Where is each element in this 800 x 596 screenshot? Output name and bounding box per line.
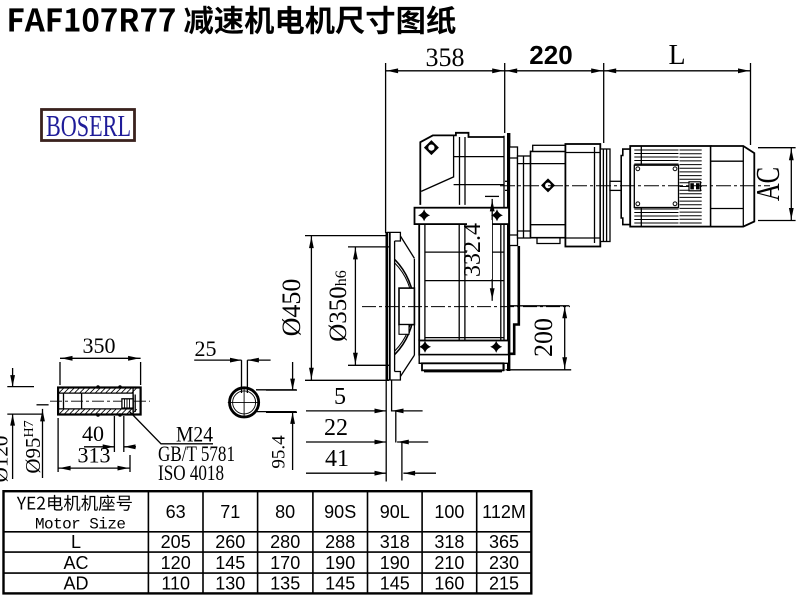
svg-text:215: 215 xyxy=(489,574,519,594)
svg-text:L: L xyxy=(71,532,81,552)
svg-text:Ø450: Ø450 xyxy=(277,279,306,337)
svg-text:210: 210 xyxy=(434,553,464,573)
svg-text:318: 318 xyxy=(434,532,464,552)
svg-text:22: 22 xyxy=(324,415,348,441)
svg-text:90L: 90L xyxy=(380,502,410,522)
svg-text:ISO 4018: ISO 4018 xyxy=(158,460,224,485)
svg-text:145: 145 xyxy=(215,553,245,573)
svg-text:25: 25 xyxy=(195,336,217,361)
svg-text:205: 205 xyxy=(161,532,191,552)
svg-text:80: 80 xyxy=(275,502,295,522)
svg-text:280: 280 xyxy=(270,532,300,552)
svg-text:90S: 90S xyxy=(324,502,356,522)
svg-text:200: 200 xyxy=(529,318,558,357)
svg-text:313: 313 xyxy=(78,443,111,468)
svg-text:170: 170 xyxy=(270,553,300,573)
svg-text:BOSERL: BOSERL xyxy=(46,109,131,143)
svg-text:145: 145 xyxy=(380,574,410,594)
svg-text:190: 190 xyxy=(325,553,355,573)
svg-text:365: 365 xyxy=(489,532,519,552)
svg-text:318: 318 xyxy=(380,532,410,552)
svg-text:130: 130 xyxy=(215,574,245,594)
svg-text:110: 110 xyxy=(161,574,190,594)
svg-text:260: 260 xyxy=(215,532,245,552)
svg-text:Ø350h6: Ø350h6 xyxy=(325,270,352,342)
svg-text:L: L xyxy=(668,40,685,71)
svg-text:230: 230 xyxy=(489,553,519,573)
svg-text:332.4: 332.4 xyxy=(460,223,486,277)
svg-text:288: 288 xyxy=(325,532,355,552)
svg-text:71: 71 xyxy=(220,502,240,522)
svg-text:95.4: 95.4 xyxy=(269,435,290,469)
svg-text:190: 190 xyxy=(380,553,410,573)
svg-text:135: 135 xyxy=(270,574,300,594)
svg-text:Ø120: Ø120 xyxy=(0,436,13,483)
svg-text:100: 100 xyxy=(434,502,464,522)
svg-text:145: 145 xyxy=(325,574,355,594)
svg-text:41: 41 xyxy=(325,446,349,472)
svg-text:350: 350 xyxy=(83,333,116,358)
svg-text:AD: AD xyxy=(63,574,88,594)
svg-text:220: 220 xyxy=(529,40,572,70)
svg-text:112M: 112M xyxy=(482,502,526,522)
svg-text:Ø95H7: Ø95H7 xyxy=(21,420,45,473)
svg-text:AC: AC xyxy=(63,553,88,573)
svg-text:63: 63 xyxy=(166,502,186,522)
svg-text:358: 358 xyxy=(426,43,465,72)
svg-text:5: 5 xyxy=(334,384,346,410)
svg-text:120: 120 xyxy=(161,553,191,573)
svg-text:Motor Size: Motor Size xyxy=(35,516,126,534)
svg-text:160: 160 xyxy=(434,574,464,594)
